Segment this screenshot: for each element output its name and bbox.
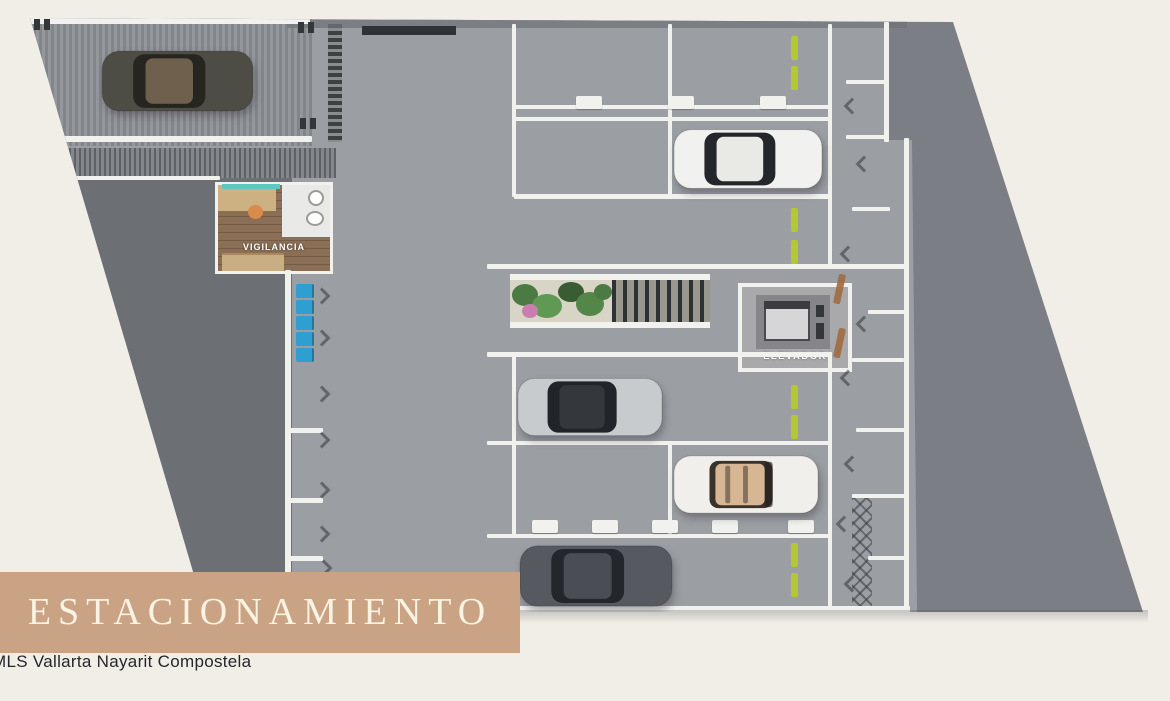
wall-line: [514, 194, 830, 199]
wall-line: [828, 352, 832, 612]
page-title: ESTACIONAMIENTO: [0, 572, 520, 653]
wall-line: [852, 494, 906, 498]
wall-line: [56, 136, 312, 142]
wall-line: [868, 310, 908, 314]
gate-mark: [34, 19, 40, 30]
gate-mark: [308, 22, 314, 33]
car-white-sedan: [672, 126, 824, 192]
bike-rack-item: [296, 284, 314, 298]
vigilancia-label: VIGILANCIA: [218, 242, 330, 252]
bike-rack: [296, 284, 314, 364]
zigzag-wall-texture: [852, 498, 872, 612]
plant: [594, 284, 612, 300]
planter-bed: [510, 280, 612, 322]
bike-rack-item: [296, 348, 314, 362]
planter-and-stairs: [510, 274, 710, 328]
credit-text: MLS Vallarta Nayarit Compostela: [0, 652, 251, 672]
wall-line: [884, 22, 889, 142]
wall-line: [487, 352, 832, 357]
vigilancia-room: VIGILANCIA: [215, 182, 333, 274]
vigilancia-bathroom: [282, 185, 330, 237]
flower: [522, 304, 538, 318]
toilet: [306, 211, 324, 226]
bike-rack-item: [296, 316, 314, 330]
wall-line: [487, 441, 830, 445]
vigilancia-window: [222, 184, 280, 189]
parking-marker: [791, 573, 798, 597]
parking-marker: [791, 415, 798, 439]
top-wall-dark-segment: [362, 26, 456, 35]
wall-line: [856, 428, 906, 432]
wall-line: [846, 135, 886, 139]
wall-line: [828, 24, 832, 267]
car-silver: [516, 375, 664, 439]
wall-line: [285, 270, 291, 612]
gate-mark: [300, 118, 306, 129]
gate-mark: [298, 22, 304, 33]
wheel-stop: [652, 520, 678, 533]
car-dark-gray: [518, 540, 674, 612]
wall-line: [852, 207, 890, 211]
grate-wall: [328, 24, 342, 142]
walkway-strip: [64, 148, 336, 178]
wall-line: [904, 138, 909, 612]
wall-line: [514, 117, 830, 121]
wheel-stop: [668, 96, 694, 109]
elevator-panel: [816, 323, 824, 339]
wall-line: [30, 18, 310, 24]
elevator-panel: [816, 305, 824, 317]
wheel-stop: [576, 96, 602, 109]
bike-rack-item: [296, 300, 314, 314]
gate-mark: [44, 19, 50, 30]
parking-marker: [791, 208, 798, 232]
vigilancia-chair: [248, 205, 263, 219]
staircase: [612, 280, 710, 322]
wall-line: [487, 264, 905, 269]
wheel-stop: [712, 520, 738, 533]
parking-marker: [791, 66, 798, 90]
elevator-shaft: [756, 295, 830, 349]
wall-line: [512, 24, 516, 197]
title-banner: ESTACIONAMIENTO: [0, 572, 520, 653]
sink: [308, 190, 324, 206]
elevator-cab-doors: [764, 301, 810, 309]
wall-line: [846, 80, 886, 84]
wall-line: [868, 556, 906, 560]
wheel-stop: [592, 520, 618, 533]
parking-marker: [791, 240, 798, 264]
parking-marker: [791, 36, 798, 60]
wall-line: [852, 358, 904, 362]
wheel-stop: [532, 520, 558, 533]
car-dark-olive-on-ramp: [100, 48, 255, 114]
vigilancia-desk: [222, 253, 284, 271]
parking-marker: [791, 385, 798, 409]
wall-line: [70, 176, 220, 180]
wheel-stop: [760, 96, 786, 109]
wheel-stop: [788, 520, 814, 533]
parking-plan-slide: ELEVADOR VIGILANCIA: [0, 0, 1170, 701]
bike-rack-item: [296, 332, 314, 346]
car-white-convertible: [672, 451, 820, 518]
gate-mark: [310, 118, 316, 129]
parking-marker: [791, 543, 798, 567]
wall-line: [487, 534, 830, 538]
